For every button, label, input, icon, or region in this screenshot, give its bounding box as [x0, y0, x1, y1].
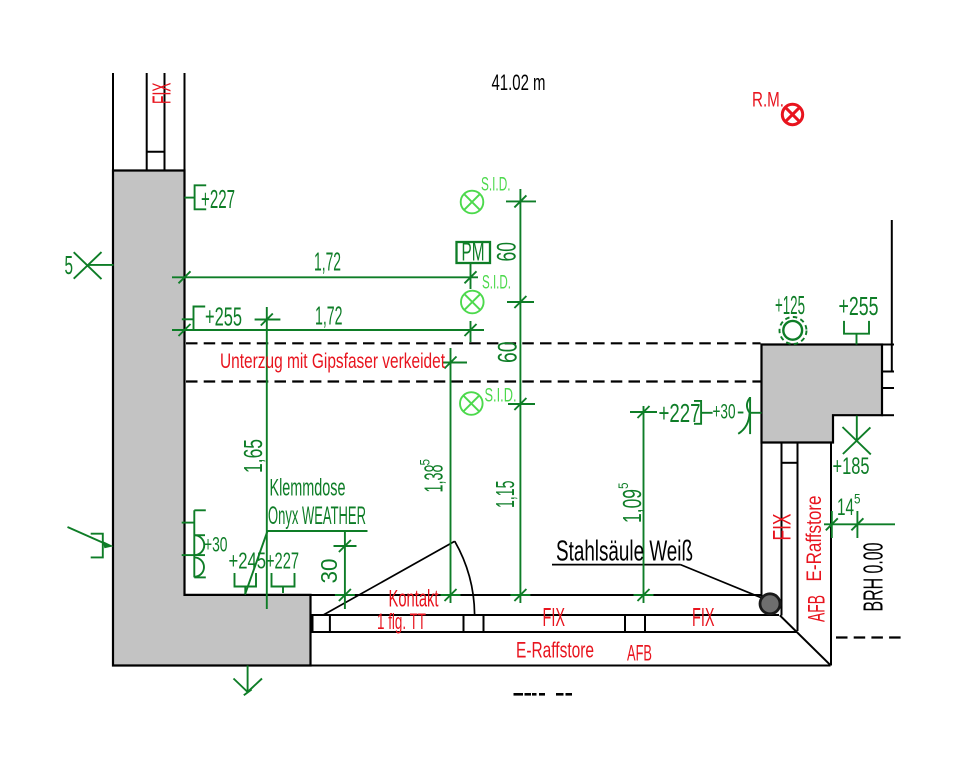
svg-text:FIX: FIX	[543, 602, 566, 632]
svg-text:Unterzug mit Gipsfaser verkeid: Unterzug mit Gipsfaser verkeidet	[220, 349, 445, 373]
svg-text:E-Raffstore: E-Raffstore	[803, 496, 826, 582]
svg-text:+227: +227	[659, 400, 701, 428]
svg-text:+185: +185	[833, 453, 870, 480]
svg-text:+30: +30	[204, 534, 228, 557]
svg-text:+30: +30	[713, 401, 736, 424]
svg-text:14: 14	[837, 494, 854, 521]
svg-text:60: 60	[493, 342, 523, 364]
svg-text:1 flg. TT: 1 flg. TT	[377, 609, 426, 634]
svg-text:S.I.D.: S.I.D.	[481, 175, 511, 196]
svg-text:E-Raffstore: E-Raffstore	[516, 638, 594, 663]
svg-text:+255: +255	[205, 304, 242, 332]
svg-text:1,72: 1,72	[315, 303, 343, 331]
svg-text:BRH 0.00: BRH 0.00	[858, 543, 889, 612]
svg-text:+255: +255	[839, 291, 879, 321]
svg-text:Klemmdose: Klemmdose	[270, 475, 346, 502]
svg-text:5: 5	[65, 250, 74, 280]
svg-text:S.I.D.: S.I.D.	[485, 386, 517, 407]
svg-text:AFB: AFB	[804, 595, 831, 622]
svg-text:5: 5	[418, 459, 433, 466]
svg-text:PM: PM	[462, 237, 485, 267]
svg-text:1,09: 1,09	[619, 489, 647, 523]
svg-text:1,38: 1,38	[421, 465, 449, 493]
svg-text:1,15: 1,15	[492, 481, 520, 509]
svg-text:AFB: AFB	[627, 641, 652, 666]
svg-text:5: 5	[854, 491, 861, 507]
svg-text:60: 60	[492, 242, 522, 262]
svg-text:Stahlsäule Weiß: Stahlsäule Weiß	[556, 536, 693, 568]
svg-text:41.02 m: 41.02 m	[492, 70, 546, 95]
svg-text:5: 5	[616, 483, 631, 490]
svg-text:R.M.: R.M.	[752, 89, 784, 112]
svg-text:FIX: FIX	[149, 83, 177, 105]
svg-text:FIX: FIX	[692, 602, 715, 632]
svg-text:FIX: FIX	[769, 513, 797, 540]
svg-text:Onyx WEATHER: Onyx WEATHER	[268, 502, 366, 530]
svg-text:S.I.D.: S.I.D.	[482, 273, 511, 294]
svg-text:1,65: 1,65	[240, 439, 268, 473]
svg-text:+125: +125	[775, 290, 805, 320]
svg-text:+245: +245	[229, 548, 267, 574]
svg-text:+227: +227	[266, 548, 299, 574]
svg-text:1,72: 1,72	[314, 249, 341, 277]
svg-text:30: 30	[316, 559, 342, 584]
svg-text:+227: +227	[201, 186, 235, 214]
